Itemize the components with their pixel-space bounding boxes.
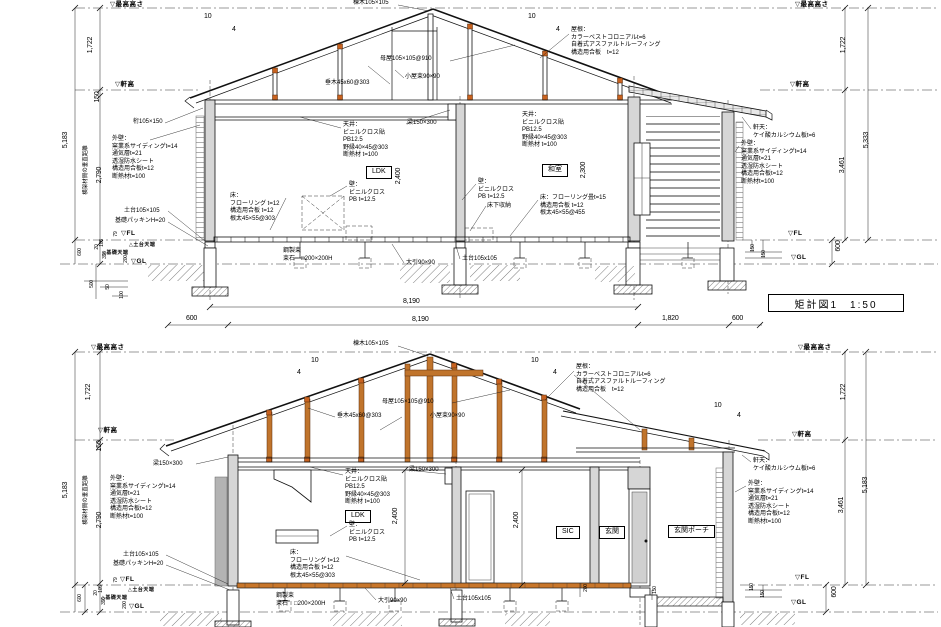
note-exterior-wall-left: 外壁： 窯業系サイディングt=14 通気層t=21 透湿防水シート 構造用合板t… [112, 136, 177, 181]
level-gl-right: ▽GL [791, 599, 807, 607]
note-sill: 土台105×105 [123, 552, 159, 560]
note-eave-soffit-right: 軒天： ケイ酸カルシウム板t=6 [753, 125, 815, 140]
dim-vert: 1,722 [840, 37, 849, 54]
note-wall-ldk: 壁： ビニルクロス PB t=12.5 [349, 182, 385, 205]
note-beam: 梁150×300 [409, 467, 439, 475]
note-roof-post: 小屋束90×90 [430, 413, 465, 421]
dim-vert: 200 [123, 255, 129, 263]
level-eave-right: ▽軒高 [792, 431, 812, 439]
note-ridge: 棟木105×105 [353, 0, 389, 8]
slope-mark: 4 [737, 412, 741, 421]
note-exterior-wall-right: 外壁： 窯業系サイディングt=14 通気層t=21 透湿防水シート 構造用合板t… [748, 481, 813, 526]
dim-vert: 50 [105, 284, 111, 289]
note-beam: 梁150×300 [153, 461, 183, 469]
dim-vert: 20 [94, 244, 100, 249]
dim-vert: 2,790 [96, 512, 105, 529]
note-foundation-packing: 基礎パッキンH=20 [113, 561, 163, 569]
level-max-height-right: ▽最高高さ [798, 344, 832, 352]
room-label-porch: 玄関ポーチ [668, 525, 715, 538]
dim-vert: 3,461 [839, 157, 848, 174]
note-purlin: 母屋105×105@910 [382, 399, 434, 407]
dim-vert: 396 [102, 251, 108, 259]
note-sill-center: 土台105x105 [462, 256, 497, 264]
room-label-sic: SIC [556, 526, 580, 539]
note-exterior-wall-left: 外壁： 窯業系サイディングt=14 通気層t=21 透湿防水シート 構造用合板t… [110, 476, 175, 521]
level-gl-left: ▽GL [131, 258, 147, 266]
level-fl-left: ▽FL [121, 230, 135, 238]
note-sleeper: 大引90×90 [406, 260, 435, 268]
level-sill-top: △土台天端 [129, 242, 155, 248]
dim-vert: 500 [89, 280, 95, 288]
note-wall-ldk: 壁： ビニルクロス PB t=12.5 [349, 522, 385, 545]
note-steel-post: 鋼製束 [283, 248, 301, 256]
note-vert-member-distance: 横架材間の垂直距離 [83, 145, 90, 195]
dim-vert: 200 [122, 601, 128, 609]
note-steel-post: 鋼製束 [276, 593, 294, 601]
dim-vert: 600 [831, 586, 840, 597]
dim-vert: 2,400 [395, 168, 404, 185]
slope-mark: 4 [556, 26, 560, 35]
level-fl-right: ▽FL [795, 574, 809, 582]
dim-horiz: 600 [186, 315, 197, 324]
room-label-genkan: 玄関 [599, 526, 625, 539]
note-ceiling-washitsu: 天井： ビニルクロス貼 PB12.5 野縁40×45@303 断熱材 t=100 [522, 112, 567, 150]
level-max-height-left: ▽最高高さ [110, 1, 144, 9]
dim-vert: 2,300 [580, 162, 589, 179]
kanabakari-section-drawing-sheet: ▽最高高さ▽最高高さ1,7221,722▽軒高▽軒高1505,183横架材間の垂… [0, 0, 941, 627]
dim-horiz: 8,190 [412, 316, 429, 325]
dim-vert: 600 [835, 240, 844, 251]
dim-vert: 100 [119, 291, 125, 299]
dim-vert: 2,400 [513, 512, 522, 529]
slope-mark: 10 [528, 13, 535, 22]
dim-vert: 2,790 [96, 167, 105, 184]
dim-vert: 5,333 [863, 132, 872, 149]
dim-vert: 150 [760, 590, 766, 598]
note-vert-member-distance: 横架材間の垂直距離 [83, 475, 90, 525]
dim-vert: 600 [77, 594, 83, 602]
drawing-title-block: 矩計図1 1:50 [768, 294, 904, 312]
level-gl-right: ▽GL [791, 254, 807, 262]
note-purlin: 母屋105×105@910 [380, 56, 432, 64]
note-underfloor-storage: 床下収納 [487, 203, 511, 211]
room-label-washitsu: 和室 [542, 164, 568, 177]
slope-mark: 4 [232, 26, 236, 35]
note-exterior-wall-right: 外壁： 窯業系サイディングt=14 通気層t=21 透湿防水シート 構造用合板t… [741, 141, 806, 186]
dim-vert: 150 [96, 440, 105, 451]
slope-mark: 10 [714, 402, 721, 411]
dim-horiz: 600 [732, 315, 743, 324]
annotation-layer: ▽最高高さ▽最高高さ1,7221,722▽軒高▽軒高1505,183横架材間の垂… [0, 0, 941, 627]
level-gl-left: ▽GL [129, 603, 145, 611]
dim-vert: 5,183 [62, 132, 71, 149]
dim-vert: 200 [583, 584, 589, 592]
note-sill: 土台105×105 [124, 208, 160, 216]
note-rafter: 垂木45x60@303 [325, 80, 369, 88]
note-floor-ldk: 床： フローリング t=12 構造用合板 t=12 根太45×55@303 [290, 550, 340, 580]
dim-vert: 5,183 [62, 482, 71, 499]
note-ceiling-ldk: 天井： ビニルクロス貼 PB12.5 野縁40×45@303 断熱材 t=100 [343, 122, 388, 160]
dim-vert: 1,722 [840, 384, 849, 401]
dim-vert: 150 [94, 91, 103, 102]
note-beam: 梁150×300 [407, 120, 437, 128]
dim-horiz: 1,820 [662, 315, 679, 324]
slope-mark: 10 [311, 357, 318, 366]
slope-mark: 10 [204, 13, 211, 22]
note-post-stone: 束石 □200×200H [283, 256, 332, 264]
level-max-height-right: ▽最高高さ [795, 1, 829, 9]
dim-vert: 150 [749, 583, 755, 591]
slope-mark: 10 [531, 357, 538, 366]
dim-vert: 79 [113, 577, 119, 582]
level-fl-left: ▽FL [120, 576, 134, 584]
dim-vert: 5,183 [862, 477, 871, 494]
note-roof-spec: 屋根： カラーベストコロニアルt=6 自着式アスファルトルーフィング 構造用合板… [571, 27, 661, 57]
dim-vert: 150 [750, 244, 756, 252]
level-eave-left: ▽軒高 [115, 81, 135, 89]
note-sleeper: 大引90×90 [378, 598, 407, 606]
note-wall-washitsu: 壁： ビニルクロス PB t=12.5 [478, 179, 514, 202]
dim-vert: 3,461 [838, 497, 847, 514]
note-eave-soffit-right: 軒天： ケイ酸カルシウム板t=6 [753, 458, 815, 473]
level-fl-right: ▽FL [788, 230, 802, 238]
note-roof-spec: 屋根： カラーベストコロニアルt=6 自着式アスファルトルーフィング 構造用合板… [576, 364, 666, 394]
dim-vert: 150 [761, 250, 767, 258]
dim-vert: 79 [113, 231, 119, 236]
level-eave-right: ▽軒高 [790, 81, 810, 89]
level-sill-top: △土台天端 [128, 587, 154, 593]
dim-vert: 396 [101, 597, 107, 605]
note-rafter: 垂木45x60@303 [337, 413, 381, 421]
note-ridge: 棟木105×105 [353, 341, 389, 349]
note-girder: 桁105×150 [133, 119, 163, 127]
note-foundation-packing: 基礎パッキンH=20 [115, 218, 165, 226]
note-sill-center: 土台105x105 [456, 596, 491, 604]
note-post-stone: 束石 □200×200H [276, 601, 325, 609]
level-eave-left: ▽軒高 [98, 427, 118, 435]
slope-mark: 4 [553, 369, 557, 378]
dim-vert: 20 [93, 590, 99, 595]
note-floor-ldk: 床： フローリング t=12 構造用合板 t=12 根太45×55@303 [230, 193, 280, 223]
note-roof-post: 小屋束90×90 [405, 74, 440, 82]
dim-vert: 150 [652, 586, 658, 594]
room-label-ldk: LDK [345, 510, 371, 523]
slope-mark: 4 [297, 369, 301, 378]
level-max-height-left: ▽最高高さ [91, 344, 125, 352]
dim-vert: 1,722 [85, 384, 94, 401]
note-floor-washitsu: 床：フローリング畳t=15 構造用合板 t=12 根太45×55@455 [540, 195, 606, 218]
room-label-ldk: LDK [366, 166, 392, 179]
dim-vert: 1,722 [87, 37, 96, 54]
dim-horiz: 8,190 [403, 298, 420, 307]
note-ceiling-ldk: 天井： ビニルクロス貼 PB12.5 野縁40×45@303 断熱材 t=100 [345, 469, 390, 507]
dim-vert: 600 [77, 248, 83, 256]
dim-vert: 2,400 [392, 508, 401, 525]
